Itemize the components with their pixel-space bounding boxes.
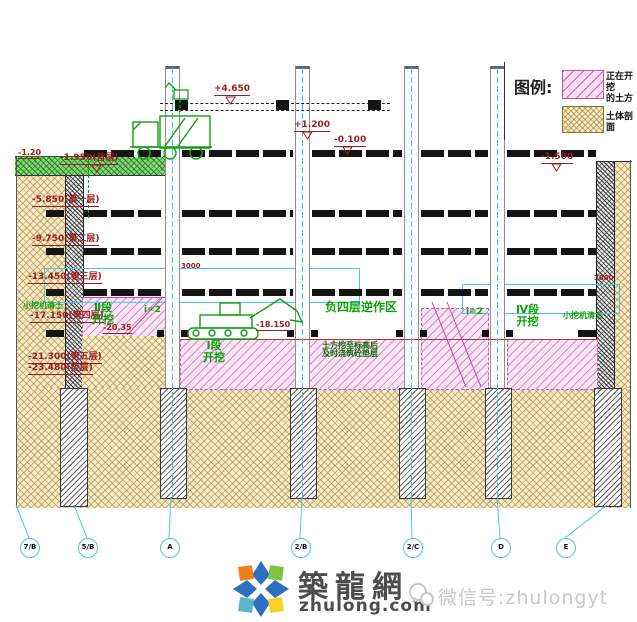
bored-pile xyxy=(594,388,622,507)
floor-slab-segment xyxy=(506,330,513,337)
floor-slab-segment xyxy=(182,210,293,217)
structural-column xyxy=(295,66,310,393)
floor-slab-segment xyxy=(421,248,488,255)
floor-slab-segment xyxy=(507,248,596,255)
excavator-icon xyxy=(188,299,302,339)
axis-bubble: A xyxy=(160,538,180,558)
platform-dashed-line-upper xyxy=(160,103,390,104)
platform-support-block xyxy=(175,100,188,110)
bored-pile xyxy=(160,388,187,499)
dimension-label: 3000 xyxy=(594,275,613,282)
bored-pile xyxy=(485,388,512,499)
zone-label: 小挖机清土 xyxy=(23,302,63,310)
soil-bottom xyxy=(16,388,630,508)
floor-slab-segment xyxy=(312,248,402,255)
dimension-label: 3000 xyxy=(181,263,200,270)
floor-slab-segment xyxy=(311,330,318,337)
floor-slab-segment xyxy=(312,150,402,157)
legend-swatch-excavating xyxy=(562,70,604,99)
floor-slab-segment xyxy=(46,248,64,255)
axis-bubble: 7/B xyxy=(20,538,40,558)
zone-label: i=2 xyxy=(466,308,483,317)
floor-slab-segment xyxy=(396,330,403,337)
elevation-label: -23.480(垫层) xyxy=(28,364,93,375)
legend-title: 图例: xyxy=(514,74,552,98)
floor-slab-segment xyxy=(312,210,402,217)
elevation-label: -1.950(首层) xyxy=(60,154,118,165)
wechat-id-text: 微信号:zhulongyt xyxy=(438,583,608,610)
axis-bubble: 5/B xyxy=(78,538,98,558)
current-grade-line xyxy=(180,339,596,340)
floor-slab-segment xyxy=(181,330,188,337)
platform-dashed-line-lower xyxy=(160,110,390,111)
elevation-label: -18.150 xyxy=(256,321,290,331)
floor-slab-segment xyxy=(507,210,596,217)
zone-label: Ⅱ段 开挖 xyxy=(92,302,114,325)
structural-column xyxy=(165,66,180,393)
zone-label: 负四层逆作区 xyxy=(325,301,397,314)
elevation-label: -13.450(第三层) xyxy=(28,273,102,284)
floor-slab-segment xyxy=(182,289,293,296)
floor-slab-segment xyxy=(421,150,488,157)
construction-section-drawing: -1.20-1.950(首层)+4.650+1.200-0.100-1.500-… xyxy=(0,0,637,622)
floor-slab-segment xyxy=(157,330,164,337)
axis-bubble: 2/B xyxy=(291,538,311,558)
section-right-boundary xyxy=(630,160,631,508)
excavation-zone-III-slope xyxy=(421,308,489,390)
floor-slab-segment xyxy=(84,210,163,217)
zone-label: Ⅳ段 开挖 xyxy=(516,304,539,327)
soil-right xyxy=(613,162,631,388)
elevation-label: -1.20 xyxy=(18,149,41,159)
right-ground-line xyxy=(596,161,632,162)
zone-label: 土方挖至标高后 及时浇筑砼垫层 xyxy=(322,342,378,359)
floor-slab-segment xyxy=(421,289,488,296)
legend-label-excavating: 正在开挖 的土方 xyxy=(606,72,637,104)
floor-slab-segment xyxy=(421,210,488,217)
floor-slab-segment xyxy=(46,330,64,337)
elevation-label: +4.650 xyxy=(214,85,250,96)
elevation-label: -5.850(第一层) xyxy=(32,196,99,207)
elevation-label: +1.200 xyxy=(294,121,330,132)
elevation-label: -0.100 xyxy=(334,136,366,147)
legend-swatch-soil xyxy=(562,106,604,133)
floor-slab-segment xyxy=(420,330,427,337)
axis-bubble: E xyxy=(556,538,576,558)
platform-support-block xyxy=(276,100,289,110)
section-left-boundary xyxy=(16,157,17,508)
floor-slab-segment xyxy=(84,248,163,255)
floor-slab-segment xyxy=(578,330,596,337)
floor-slab-segment xyxy=(507,289,596,296)
zone-label: 小挖机清土 xyxy=(563,312,603,320)
zone-label: Ⅰ段 开挖 xyxy=(203,340,225,363)
legend-border-line xyxy=(504,62,505,140)
legend-label-soil: 土体剖面 xyxy=(606,112,637,134)
site-url: zhulong.com xyxy=(299,596,432,616)
platform-support-block xyxy=(368,100,381,110)
axis-bubble: D xyxy=(491,538,511,558)
floor-slab-segment xyxy=(46,289,64,296)
elevation-label: -1.500 xyxy=(541,153,573,164)
floor-slab-segment xyxy=(46,210,64,217)
floor-slab-segment xyxy=(84,289,163,296)
section-mark-line xyxy=(88,160,89,218)
zone-label: i=2 xyxy=(144,306,161,315)
elevation-label: -20.35 xyxy=(103,324,132,334)
bored-pile xyxy=(60,388,88,507)
elevation-label: -9.750(第二层) xyxy=(32,235,99,246)
floor-slab-segment xyxy=(182,150,293,157)
floor-slab-segment xyxy=(312,289,402,296)
bored-pile xyxy=(399,388,426,499)
zhulong-logo-icon xyxy=(231,558,291,620)
excavation-zone-IV xyxy=(507,339,598,390)
bored-pile xyxy=(290,388,317,499)
structural-column xyxy=(404,66,419,393)
floor-slab-segment xyxy=(182,248,293,255)
axis-bubble: 2/C xyxy=(403,538,423,558)
floor-slab-segment xyxy=(482,330,489,337)
